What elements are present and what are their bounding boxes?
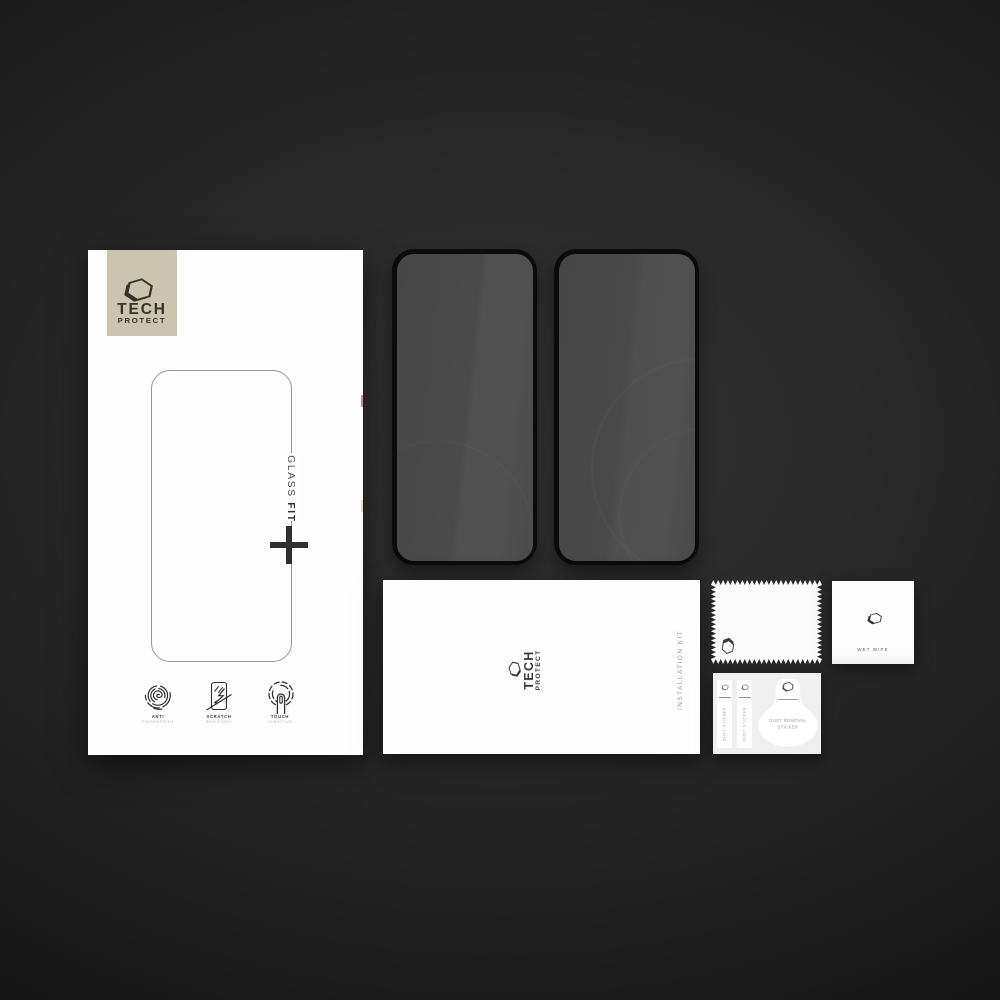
svg-text:DUST REMOVAL: DUST REMOVAL — [769, 718, 807, 723]
svg-text:STICKER: STICKER — [778, 725, 799, 730]
